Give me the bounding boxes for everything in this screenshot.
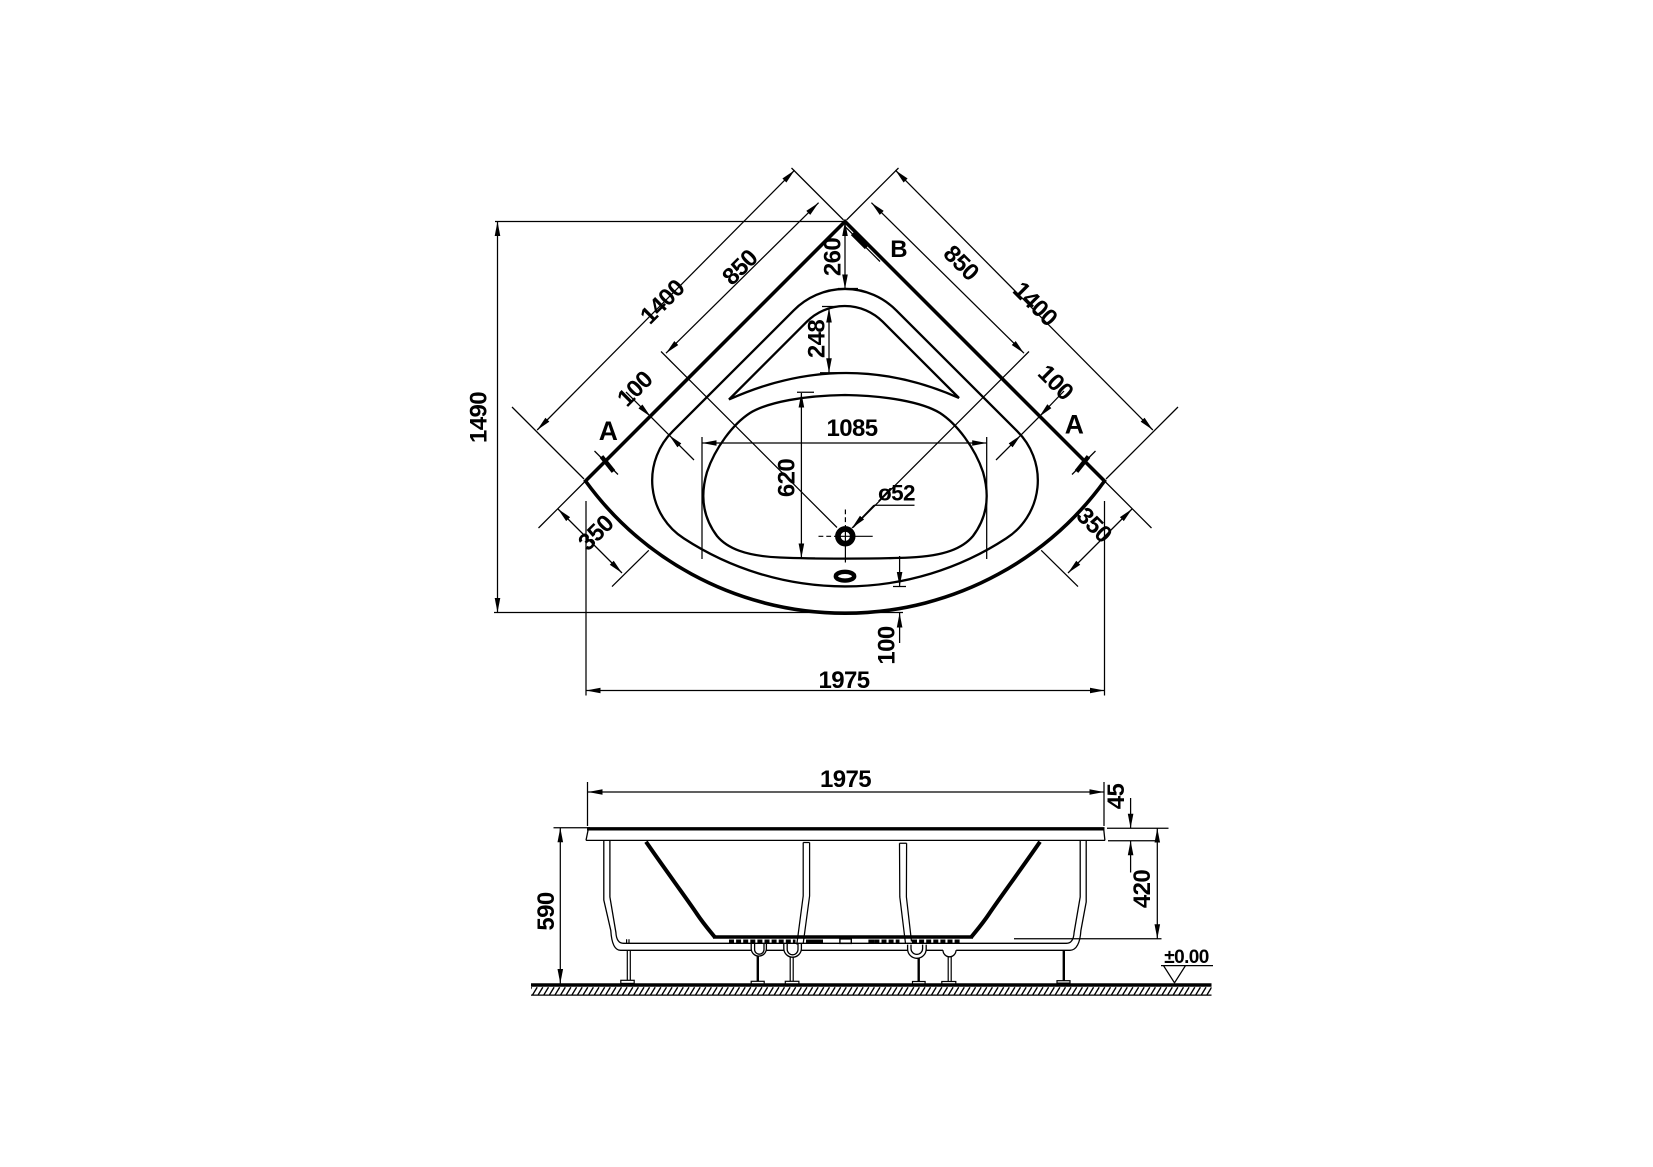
svg-text:A: A: [599, 416, 618, 446]
svg-text:1085: 1085: [827, 415, 878, 442]
svg-text:1490: 1490: [466, 392, 493, 443]
svg-text:260: 260: [819, 238, 846, 276]
svg-text:248: 248: [803, 320, 830, 358]
svg-text:B: B: [890, 236, 907, 263]
svg-text:1975: 1975: [819, 667, 870, 694]
svg-text:1975: 1975: [820, 766, 871, 793]
svg-text:620: 620: [773, 459, 800, 497]
svg-text:ø52: ø52: [878, 481, 915, 506]
svg-text:45: 45: [1103, 784, 1130, 810]
svg-text:420: 420: [1129, 870, 1156, 908]
svg-text:590: 590: [533, 892, 560, 930]
svg-text:A: A: [1065, 410, 1084, 440]
svg-text:100: 100: [873, 626, 900, 664]
svg-text:±0.00: ±0.00: [1164, 947, 1208, 968]
